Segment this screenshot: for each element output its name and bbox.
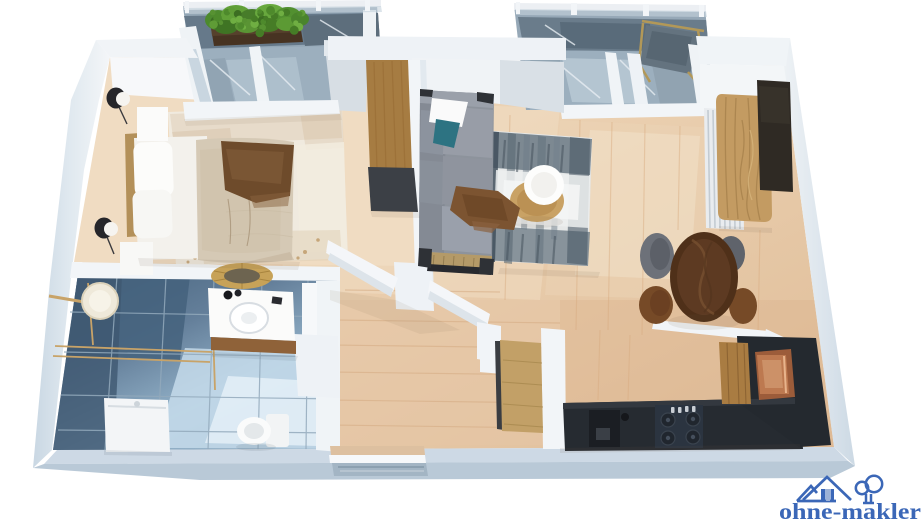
svg-text:ohne-makler: ohne-makler <box>779 499 921 520</box>
